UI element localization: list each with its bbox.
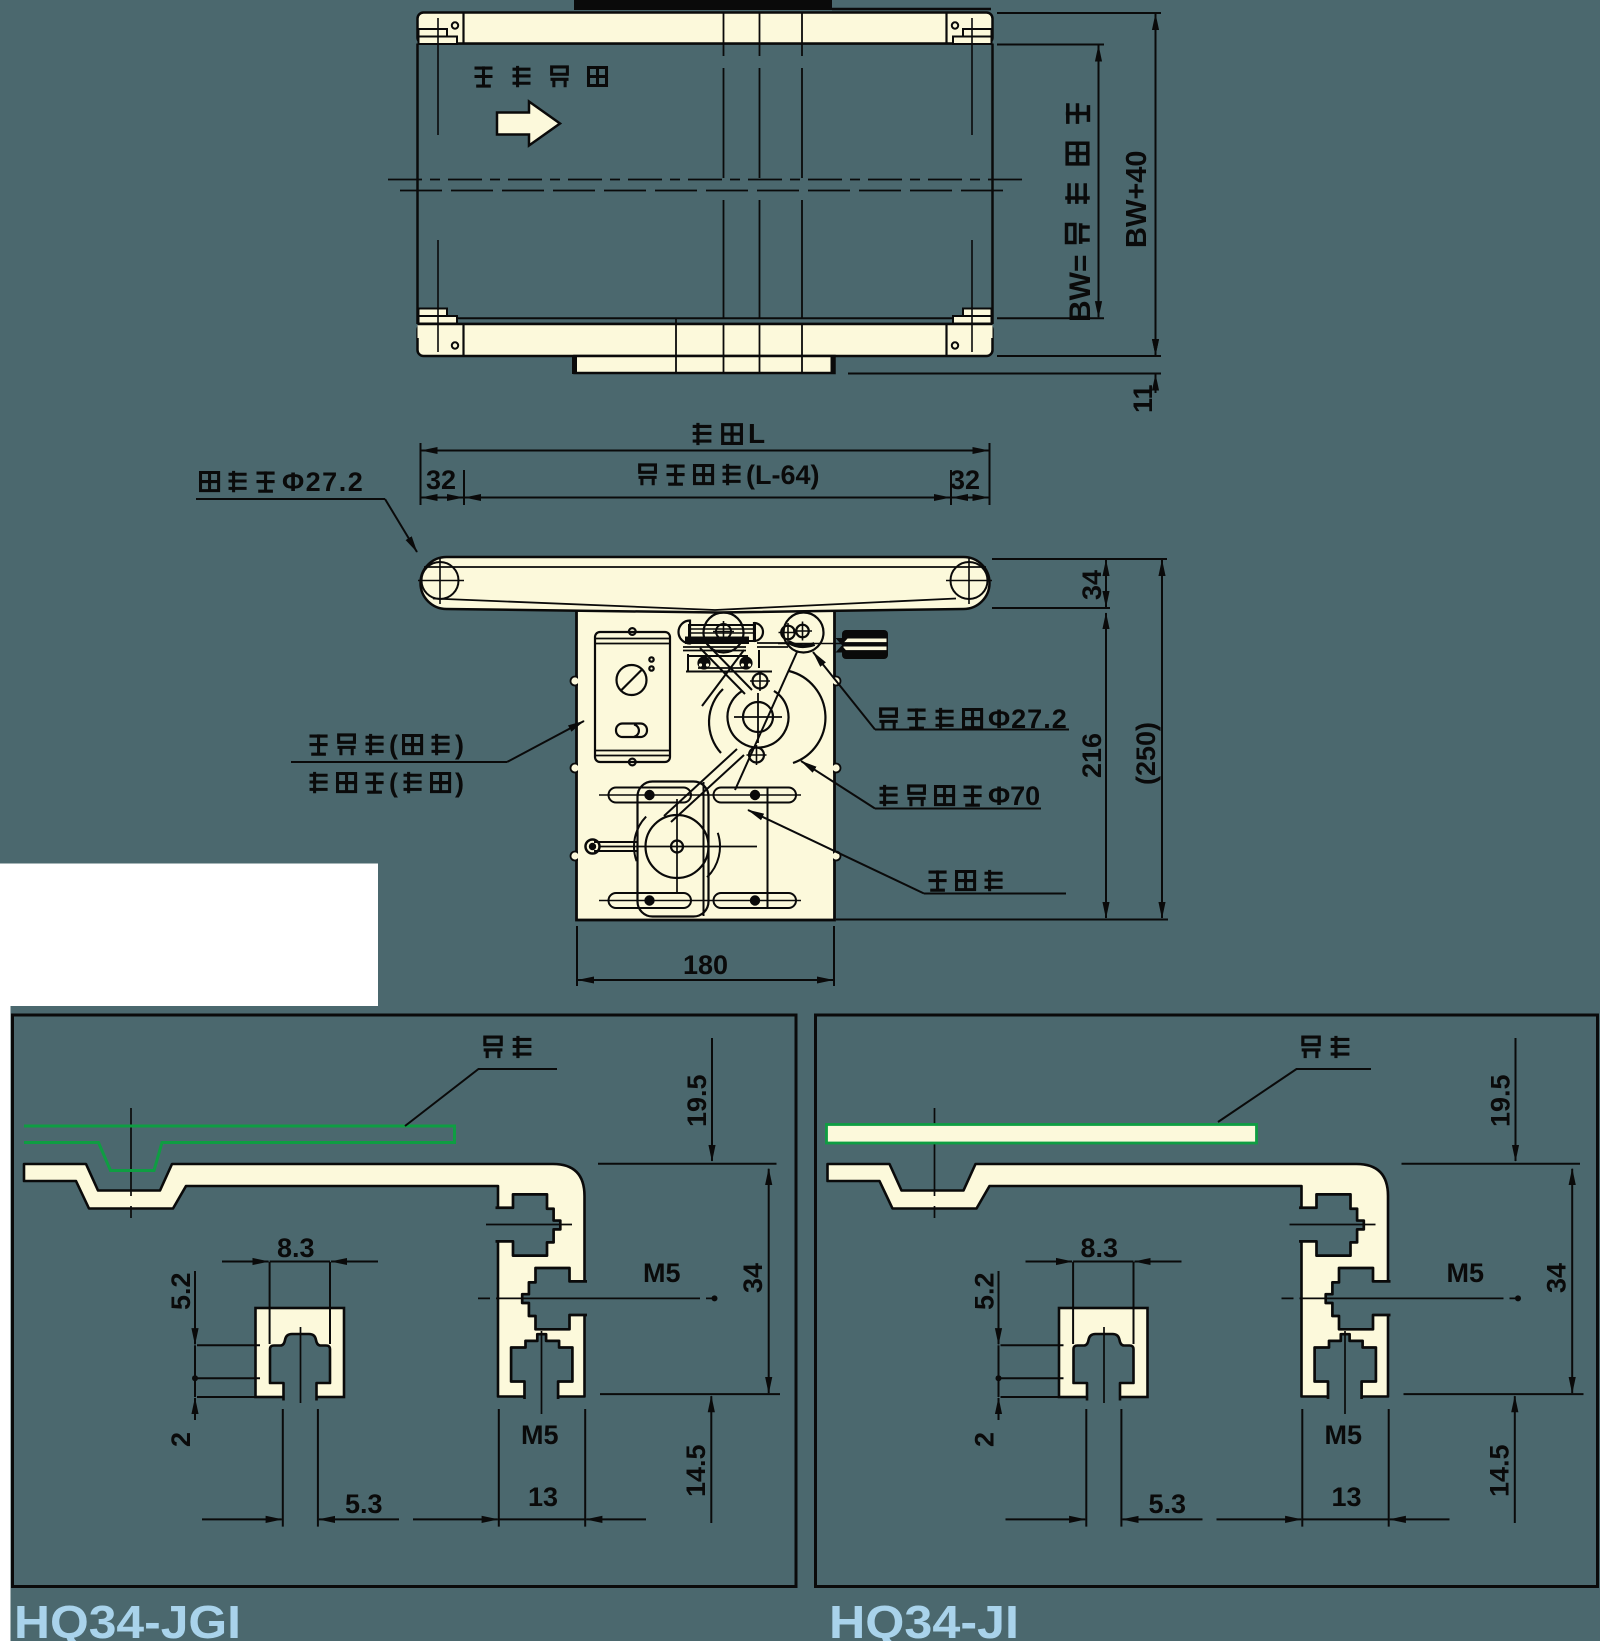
svg-text:Φ27.2: Φ27.2	[282, 467, 364, 497]
svg-text:11: 11	[1128, 384, 1158, 413]
svg-text:(L-64): (L-64)	[746, 460, 820, 490]
svg-text:Φ70: Φ70	[988, 781, 1040, 811]
svg-text:216: 216	[1077, 733, 1107, 778]
svg-text:): )	[455, 768, 464, 798]
svg-text:32: 32	[950, 465, 980, 495]
svg-text:HQ34-JGI: HQ34-JGI	[14, 1596, 241, 1641]
svg-text:(: (	[389, 768, 398, 798]
svg-text:180: 180	[683, 950, 728, 980]
svg-text:HQ34-JI: HQ34-JI	[829, 1596, 1019, 1641]
svg-text:L: L	[748, 418, 765, 449]
svg-text:(: (	[389, 730, 398, 760]
svg-text:BW=: BW=	[1064, 255, 1097, 323]
svg-text:32: 32	[426, 465, 456, 495]
svg-text:(250): (250)	[1131, 722, 1161, 785]
svg-text:BW+40: BW+40	[1121, 150, 1153, 248]
svg-text:34: 34	[1077, 570, 1107, 600]
svg-text:): )	[455, 730, 464, 760]
